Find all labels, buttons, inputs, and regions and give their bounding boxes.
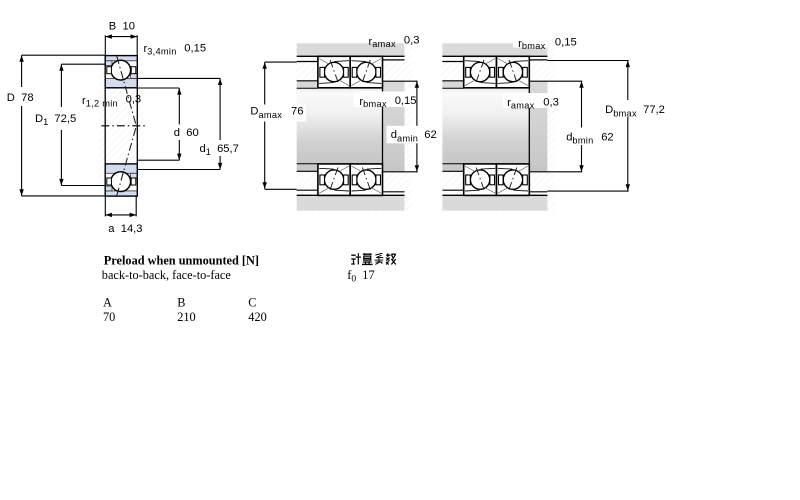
svg-text:0,3: 0,3 <box>126 94 142 106</box>
svg-text:76: 76 <box>291 106 303 118</box>
svg-text:B 10: B 10 <box>109 20 135 32</box>
svg-text:Preload when unmounted [N]: Preload when unmounted [N] <box>104 254 259 268</box>
svg-text:62: 62 <box>601 131 613 143</box>
svg-text:0,3: 0,3 <box>543 97 559 109</box>
svg-text:70: 70 <box>103 310 115 324</box>
svg-text:f0 17: f0 17 <box>347 268 374 285</box>
svg-text:C: C <box>248 296 256 310</box>
svg-text:210: 210 <box>177 310 195 324</box>
svg-text:0,3: 0,3 <box>404 34 420 46</box>
svg-text:62: 62 <box>424 129 436 141</box>
svg-text:A: A <box>103 296 112 310</box>
svg-text:B: B <box>177 296 185 310</box>
svg-text:back-to-back, face-to-face: back-to-back, face-to-face <box>102 268 232 282</box>
svg-text:0,15: 0,15 <box>555 36 577 48</box>
svg-text:0,15: 0,15 <box>184 43 206 55</box>
svg-text:420: 420 <box>248 310 266 324</box>
svg-text:0,15: 0,15 <box>395 95 417 107</box>
svg-text:r3,4min: r3,4min <box>144 43 177 56</box>
svg-text:D 78: D 78 <box>7 92 34 104</box>
svg-text:ramax: ramax <box>369 36 397 49</box>
svg-text:77,2: 77,2 <box>643 104 665 116</box>
svg-text:a 14,3: a 14,3 <box>108 223 142 235</box>
svg-text:d 60: d 60 <box>174 127 199 139</box>
